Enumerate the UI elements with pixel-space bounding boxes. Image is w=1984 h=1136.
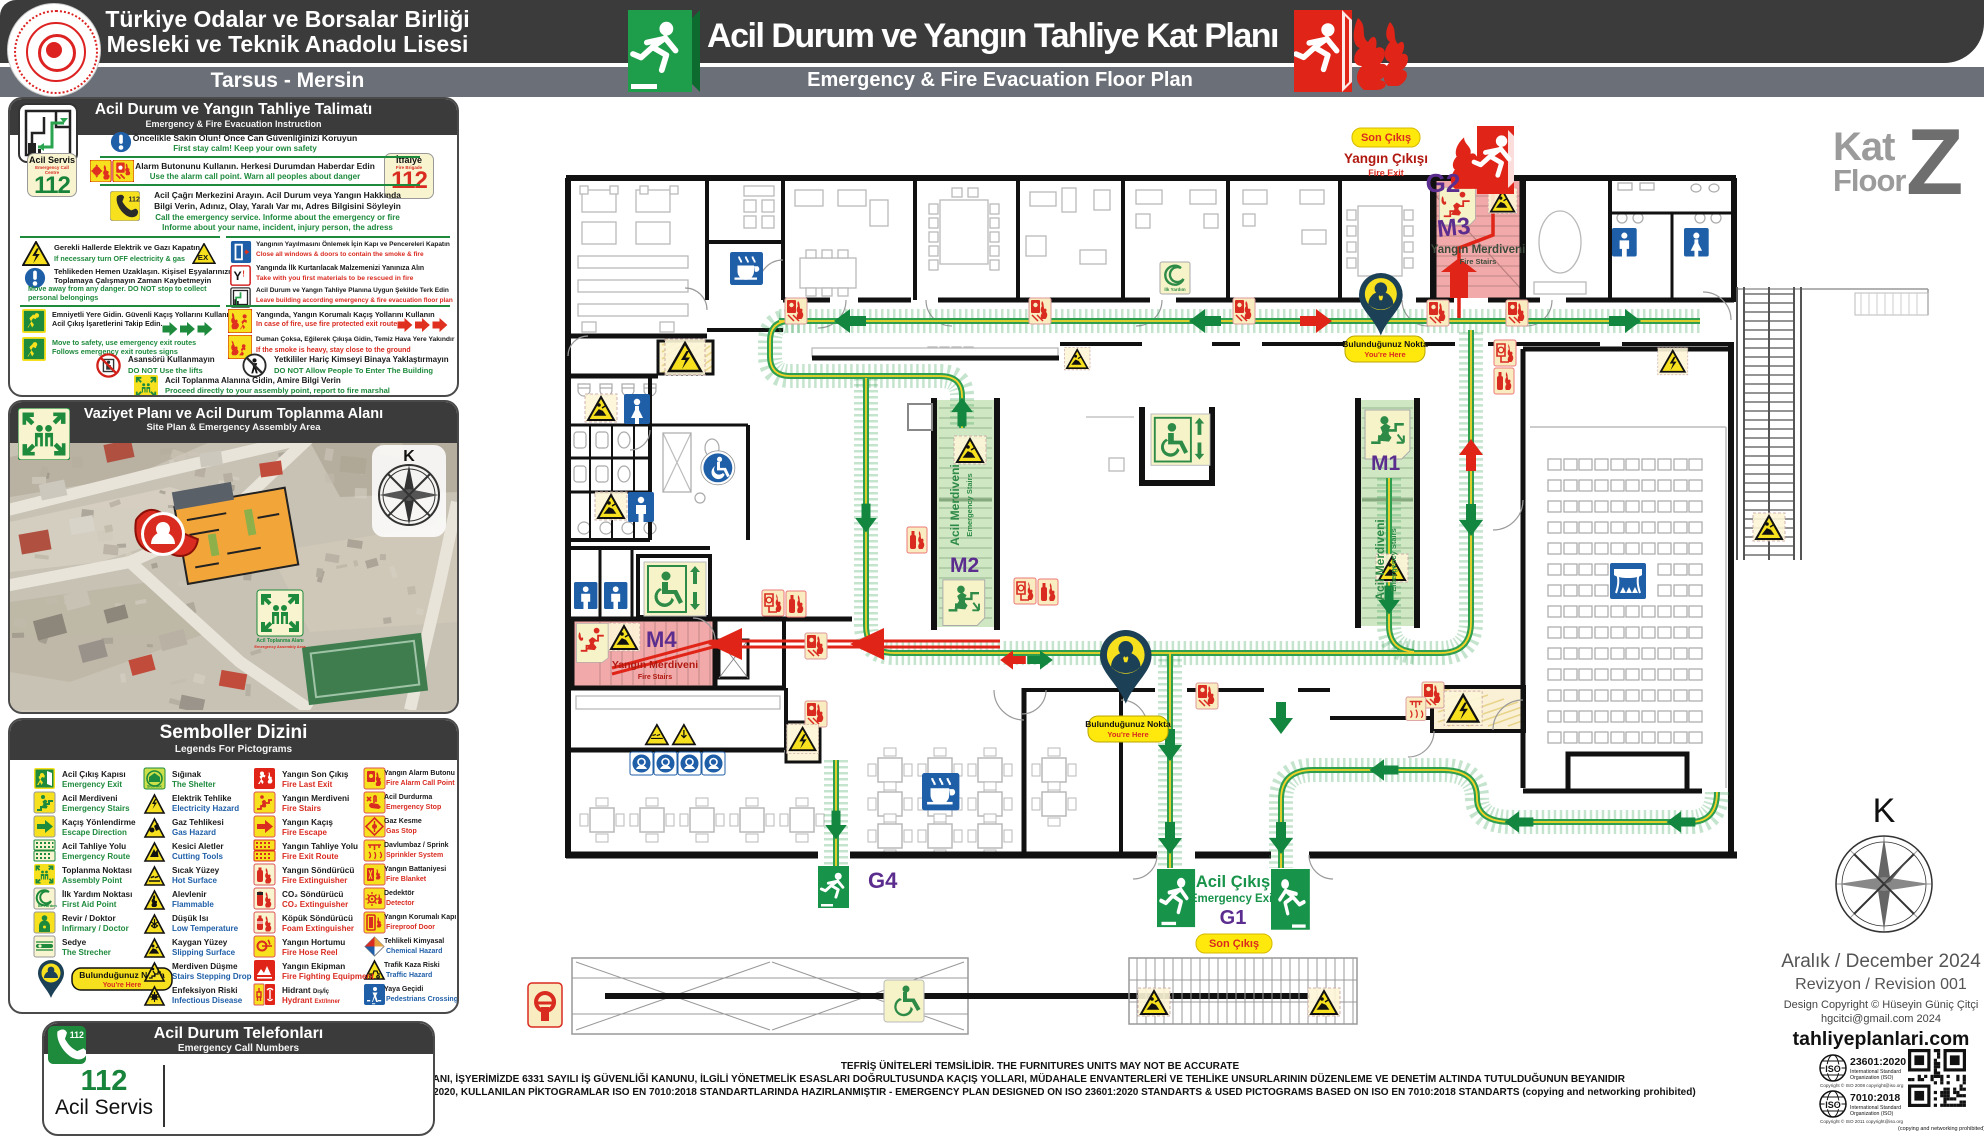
svg-text:Z: Z — [1906, 109, 1963, 214]
svg-text:TEFRİŞ ÜNİTELERİ TEMSİLİDİR. T: TEFRİŞ ÜNİTELERİ TEMSİLİDİR. THE FURNITU… — [841, 1059, 1240, 1072]
svg-text:ISO: ISO — [1825, 1064, 1841, 1074]
svg-text:Revizyon / Revision 001: Revizyon / Revision 001 — [1795, 976, 1967, 993]
svg-text:Fire Exit: Fire Exit — [1368, 168, 1404, 178]
svg-text:Organization (ISO): Organization (ISO) — [1850, 1111, 1894, 1117]
svg-text:G4: G4 — [868, 868, 898, 893]
svg-text:Fire Stairs: Fire Stairs — [1460, 257, 1497, 266]
svg-text:Acil Merdiveni: Acil Merdiveni — [1373, 519, 1387, 600]
svg-text:Copyright © ISO 2008 copyright: Copyright © ISO 2008 copyright@iso.org — [1820, 1082, 1904, 1088]
svg-text:TAHLİYE PLANI, İŞYERİMİZDE 633: TAHLİYE PLANI, İŞYERİMİZDE 6331 SAYILI İ… — [375, 1072, 1626, 1085]
svg-text:Son Çıkış: Son Çıkış — [1209, 938, 1259, 950]
svg-text:!: ! — [242, 269, 245, 278]
svg-text:Design Copyright © Hüseyin Gün: Design Copyright © Hüseyin Güniç Çitçi — [1784, 999, 1979, 1011]
svg-text:Yangın Merdiveni: Yangın Merdiveni — [1431, 244, 1526, 256]
svg-text:Emergency Stairs: Emergency Stairs — [965, 473, 974, 536]
svg-text:ISO: ISO — [1825, 1100, 1841, 1110]
svg-text:Aralık / December 2024: Aralık / December 2024 — [1781, 951, 1981, 972]
svg-text:tahliyeplanlari.com: tahliyeplanlari.com — [1793, 1028, 1970, 1050]
svg-text:7010:2018: 7010:2018 — [1850, 1092, 1900, 1104]
svg-text:Yangın Merdiveni: Yangın Merdiveni — [612, 659, 698, 671]
svg-text:You're Here: You're Here — [1107, 730, 1148, 739]
svg-text:Organization (ISO): Organization (ISO) — [1850, 1075, 1894, 1081]
svg-text:TAHLİYE PLANI ISO 23601:2020,: TAHLİYE PLANI ISO 23601:2020, KULLANILAN… — [304, 1085, 1695, 1098]
svg-text:112: 112 — [70, 1030, 84, 1040]
svg-text:23601:2020: 23601:2020 — [1850, 1056, 1906, 1068]
svg-text:M2: M2 — [950, 554, 979, 577]
svg-text:K: K — [403, 448, 415, 465]
svg-text:Y: Y — [234, 269, 242, 283]
svg-text:İlk Yardım: İlk Yardım — [1164, 286, 1185, 292]
svg-text:Emergency Stairs: Emergency Stairs — [1389, 528, 1398, 591]
svg-text:K: K — [1873, 792, 1896, 830]
svg-text:M1: M1 — [1371, 452, 1400, 475]
svg-text:Emergency Exit: Emergency Exit — [1190, 893, 1276, 905]
svg-text:Emergency Assembly Area: Emergency Assembly Area — [254, 644, 306, 649]
svg-text:Acil Çıkış: Acil Çıkış — [1196, 873, 1270, 891]
svg-text:Floor: Floor — [1833, 163, 1906, 198]
svg-text:Copyright © ISO 2011 copyright: Copyright © ISO 2011 copyright@iso.org — [1820, 1118, 1903, 1124]
svg-text:You're Here: You're Here — [1364, 350, 1405, 359]
svg-text:G2: G2 — [1426, 168, 1461, 198]
svg-text:hgcitci@gmail.com 2024: hgcitci@gmail.com 2024 — [1821, 1013, 1941, 1025]
svg-text:Bulunduğunuz Nokta: Bulunduğunuz Nokta — [1085, 719, 1171, 729]
svg-text:M3: M3 — [1436, 213, 1472, 243]
svg-text:Acil Merdiveni: Acil Merdiveni — [948, 464, 962, 545]
svg-text:Son Çıkış: Son Çıkış — [1361, 132, 1411, 144]
svg-text:Bulunduğunuz Nokta: Bulunduğunuz Nokta — [1342, 339, 1428, 349]
svg-text:M4: M4 — [646, 627, 677, 652]
svg-text:Yangın Çıkışı: Yangın Çıkışı — [1344, 151, 1428, 166]
svg-text:Fire Stairs: Fire Stairs — [638, 674, 672, 681]
svg-text:(copying and networking prohib: (copying and networking prohibited) — [1898, 1126, 1984, 1132]
svg-text:G1: G1 — [1220, 907, 1247, 929]
svg-text:112: 112 — [129, 197, 140, 204]
